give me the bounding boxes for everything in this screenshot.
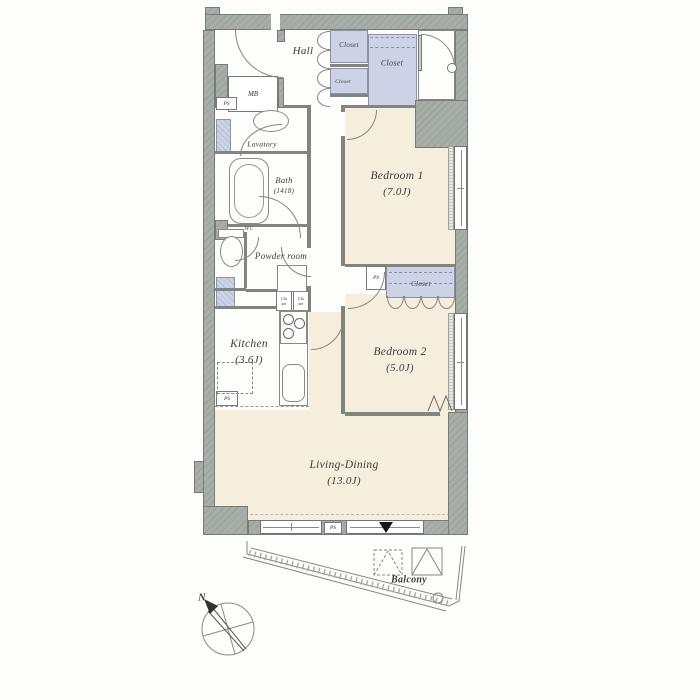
room-label-balcony: Balcony <box>391 575 427 586</box>
refrigerator-space <box>217 362 253 394</box>
room-label-wc: WC <box>245 226 254 232</box>
room-label-hall: Hall <box>293 45 314 57</box>
window <box>454 146 467 230</box>
wall-segment <box>203 30 215 522</box>
wall-segment <box>415 100 468 148</box>
washer-space <box>216 119 231 153</box>
wall-line <box>307 108 311 248</box>
pipe-space: PS <box>216 97 237 110</box>
balcony-drain <box>433 593 443 603</box>
wall-segment <box>203 506 248 535</box>
room-label-bath: Bath <box>275 175 292 185</box>
wall-segment <box>448 412 468 535</box>
room-size-kitchen: (3.6J) <box>235 354 263 366</box>
direction-marker <box>379 522 393 533</box>
pipe-space: PS <box>324 522 342 534</box>
bifold-door <box>317 69 330 88</box>
wall-line <box>330 64 368 67</box>
room-size-bedroom2: (5.0J) <box>386 362 414 374</box>
closet-label: Closet <box>335 79 351 85</box>
north-label: N <box>198 593 206 604</box>
wall-line <box>341 136 345 266</box>
wall-segment <box>205 7 220 15</box>
door-arc <box>259 196 301 238</box>
hanger-rail <box>370 37 415 48</box>
small-closet: Closet <box>276 291 292 311</box>
closet-label: Closet <box>381 59 403 68</box>
small-closet: Closet <box>293 291 309 311</box>
room-label-bedroom2: Bedroom 2 <box>373 346 426 358</box>
room-label-powder: Powder room <box>255 251 307 261</box>
room-label-living-dining: Living-Dining <box>309 459 378 471</box>
evacuation-hatch-box <box>412 548 442 575</box>
wall-line <box>215 288 246 291</box>
room-label-kitchen: Kitchen <box>230 338 268 350</box>
compass <box>202 599 254 655</box>
closet-label: Closet <box>339 41 359 49</box>
bifold-door <box>317 50 330 69</box>
stove-burner <box>283 314 294 325</box>
room-size-bedroom1: (7.0J) <box>383 186 411 198</box>
kitchen-sink <box>282 364 305 402</box>
stove-burner <box>294 318 305 329</box>
stove-burner <box>283 328 294 339</box>
door-arc <box>235 30 283 78</box>
wall-line <box>215 306 279 309</box>
north-arrow <box>208 607 246 651</box>
room-size-bath: (1418) <box>274 187 294 195</box>
kitchen-open-boundary <box>215 406 309 407</box>
wall-joint-gap <box>271 14 280 30</box>
room-label-lavatory: Lavatory <box>247 140 276 149</box>
wall-line <box>345 412 440 416</box>
wall-segment <box>205 14 468 30</box>
wall-segment <box>278 78 284 108</box>
closet-label: Closet <box>411 280 431 288</box>
window <box>454 313 467 410</box>
wall-segment <box>194 461 204 493</box>
ac-unit-dashed-box <box>374 550 402 575</box>
wall-line <box>330 94 368 97</box>
wall-segment <box>448 7 463 15</box>
door-knob <box>447 63 457 73</box>
bifold-door <box>317 31 330 50</box>
meter-box-label: MB <box>248 90 258 98</box>
floor-edge-dashes <box>250 514 450 515</box>
room-size-living-dining: (13.0J) <box>327 475 361 487</box>
linen-shelf <box>216 277 235 308</box>
bifold-door <box>317 88 330 107</box>
window <box>260 520 322 534</box>
room-label-bedroom1: Bedroom 1 <box>370 170 423 182</box>
balcony-outline <box>247 541 465 606</box>
wall-line <box>345 264 455 267</box>
floor-plan: MB PS PS PS PS Closet Closet <box>0 0 700 700</box>
